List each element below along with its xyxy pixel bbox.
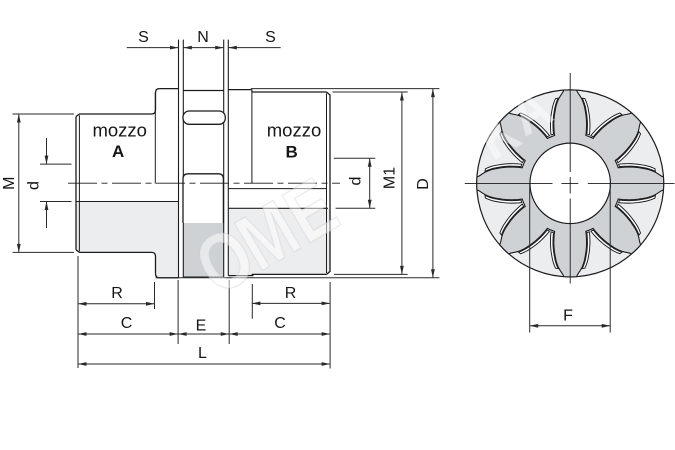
svg-text:d: d [26,181,43,190]
svg-text:S: S [138,29,149,46]
svg-text:M: M [1,177,18,190]
svg-text:E: E [196,318,207,335]
svg-text:mozzo: mozzo [267,119,322,140]
svg-text:mozzo: mozzo [92,119,147,140]
svg-text:N: N [197,29,209,46]
svg-text:D: D [415,178,432,190]
svg-text:R: R [285,285,297,302]
svg-text:C: C [121,315,133,332]
svg-text:A: A [112,142,124,161]
svg-text:L: L [198,345,207,362]
svg-text:C: C [274,315,286,332]
svg-text:F: F [563,308,573,325]
svg-text:M1: M1 [382,167,399,189]
svg-text:R: R [111,285,123,302]
svg-text:S: S [265,29,276,46]
svg-text:d: d [348,177,365,186]
svg-text:B: B [286,143,298,162]
